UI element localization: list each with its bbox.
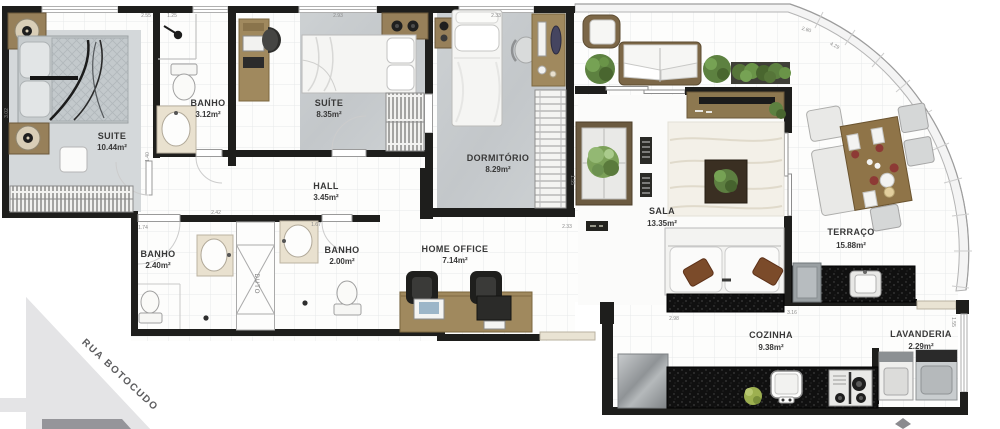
svg-text:13.35m²: 13.35m² (647, 219, 677, 228)
svg-text:HOME OFFICE: HOME OFFICE (422, 244, 489, 254)
svg-text:3.02: 3.02 (4, 108, 10, 118)
svg-text:BANHO: BANHO (325, 245, 360, 255)
svg-text:2.33: 2.33 (562, 224, 572, 230)
svg-text:3.16: 3.16 (787, 310, 797, 316)
svg-text:BANHO: BANHO (141, 249, 176, 259)
svg-text:SUITE: SUITE (98, 131, 127, 141)
svg-text:15.88m²: 15.88m² (836, 241, 866, 250)
svg-text:1.74: 1.74 (138, 225, 148, 231)
svg-text:3.45m²: 3.45m² (313, 193, 339, 202)
svg-text:2.00m²: 2.00m² (329, 257, 355, 266)
svg-text:SUÍTE: SUÍTE (315, 98, 344, 108)
svg-text:10.44m²: 10.44m² (97, 143, 127, 152)
svg-text:1.67: 1.67 (311, 222, 321, 228)
svg-text:2.29m²: 2.29m² (908, 342, 934, 351)
svg-text:3.12m²: 3.12m² (195, 110, 221, 119)
svg-text:BANHO: BANHO (191, 98, 226, 108)
svg-text:2.55: 2.55 (141, 13, 151, 19)
svg-text:2.98: 2.98 (669, 316, 679, 322)
svg-text:8.35m²: 8.35m² (316, 110, 342, 119)
svg-text:LAVANDERIA: LAVANDERIA (890, 329, 952, 339)
svg-text:1.55: 1.55 (950, 317, 956, 327)
svg-text:SALA: SALA (649, 206, 675, 216)
svg-text:9.38m²: 9.38m² (758, 343, 784, 352)
svg-text:1.25: 1.25 (167, 13, 177, 19)
svg-text:COZINHA: COZINHA (749, 330, 793, 340)
svg-text:8.29m²: 8.29m² (485, 165, 511, 174)
svg-text:TERRAÇO: TERRAÇO (827, 227, 874, 237)
svg-text:7.14m²: 7.14m² (442, 256, 468, 265)
svg-text:HALL: HALL (313, 181, 339, 191)
svg-text:DUTO: DUTO (253, 274, 259, 295)
svg-text:DORMITÓRIO: DORMITÓRIO (467, 152, 530, 163)
svg-text:2.40m²: 2.40m² (145, 261, 171, 270)
svg-text:2.42: 2.42 (211, 210, 221, 216)
svg-text:1.55: 1.55 (569, 175, 575, 185)
svg-text:1.40: 1.40 (145, 152, 151, 162)
svg-text:2.33: 2.33 (491, 13, 501, 19)
svg-text:2.93: 2.93 (333, 13, 343, 19)
